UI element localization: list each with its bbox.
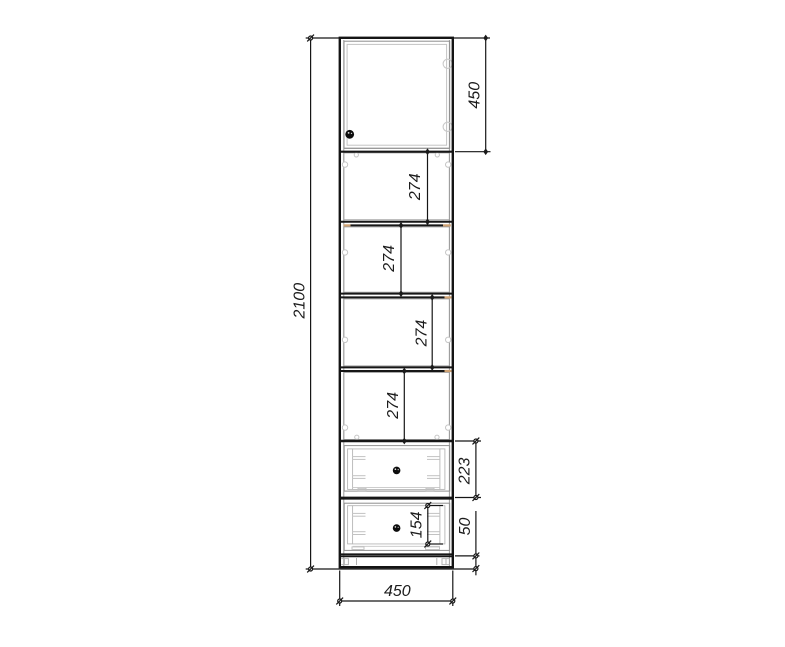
svg-text:450: 450 (384, 583, 411, 600)
svg-text:223: 223 (457, 458, 474, 486)
svg-text:274: 274 (381, 245, 398, 273)
svg-text:450: 450 (466, 82, 483, 109)
svg-text:2100: 2100 (292, 283, 309, 320)
svg-text:50: 50 (457, 518, 474, 536)
svg-text:274: 274 (407, 173, 424, 201)
svg-text:154: 154 (408, 511, 425, 538)
svg-text:274: 274 (385, 392, 402, 420)
svg-text:274: 274 (413, 320, 430, 348)
